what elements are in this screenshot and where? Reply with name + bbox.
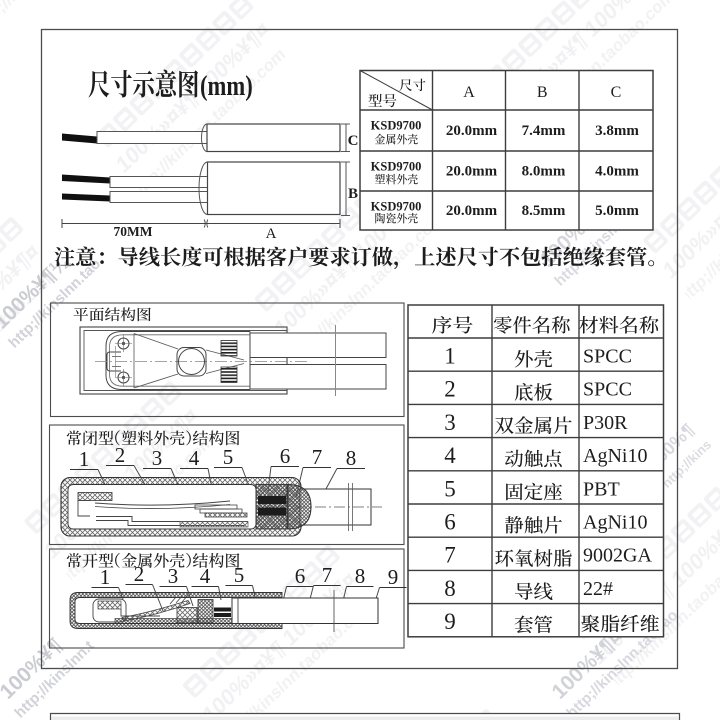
svg-text:3.8mm: 3.8mm bbox=[595, 123, 639, 139]
svg-text:8: 8 bbox=[355, 564, 366, 588]
svg-text:20.0mm: 20.0mm bbox=[446, 123, 498, 139]
svg-text:5: 5 bbox=[444, 476, 456, 501]
svg-text:5: 5 bbox=[234, 563, 245, 587]
svg-text:SPCC: SPCC bbox=[583, 346, 632, 368]
svg-text:4.0mm: 4.0mm bbox=[595, 164, 639, 180]
svg-text:1: 1 bbox=[444, 344, 456, 369]
svg-text:P30R: P30R bbox=[583, 412, 628, 434]
svg-text:4: 4 bbox=[200, 564, 211, 588]
svg-text:1: 1 bbox=[79, 447, 90, 471]
svg-text:6: 6 bbox=[280, 444, 291, 468]
svg-text:6: 6 bbox=[295, 564, 306, 588]
svg-text:C: C bbox=[348, 133, 359, 149]
svg-text:7: 7 bbox=[312, 445, 323, 469]
svg-text:4: 4 bbox=[444, 443, 456, 468]
svg-text:(mm): (mm) bbox=[200, 69, 253, 101]
svg-text:SPCC: SPCC bbox=[583, 379, 632, 401]
svg-text:8.5mm: 8.5mm bbox=[522, 203, 566, 219]
svg-text:KSD9700: KSD9700 bbox=[371, 200, 422, 214]
svg-text:20.0mm: 20.0mm bbox=[446, 164, 498, 180]
svg-text:3: 3 bbox=[152, 446, 163, 470]
svg-text:7.4mm: 7.4mm bbox=[522, 123, 566, 139]
svg-text:5: 5 bbox=[223, 445, 234, 469]
svg-text:2: 2 bbox=[134, 562, 145, 586]
svg-text:2: 2 bbox=[444, 377, 456, 402]
svg-text:AgNi10: AgNi10 bbox=[583, 512, 647, 534]
svg-text:8: 8 bbox=[444, 576, 456, 601]
svg-text:A: A bbox=[266, 226, 277, 242]
svg-text:1: 1 bbox=[100, 565, 111, 589]
svg-text:4: 4 bbox=[189, 446, 200, 470]
svg-text:8.0mm: 8.0mm bbox=[522, 164, 566, 180]
svg-text:20.0mm: 20.0mm bbox=[446, 203, 498, 219]
svg-text:2: 2 bbox=[115, 443, 126, 467]
svg-text:9002GA: 9002GA bbox=[583, 545, 652, 567]
svg-text:B: B bbox=[537, 84, 548, 101]
svg-text:22#: 22# bbox=[583, 578, 613, 600]
svg-text:70MM: 70MM bbox=[114, 224, 153, 239]
svg-text:PBT: PBT bbox=[583, 478, 620, 500]
svg-text:9: 9 bbox=[444, 609, 456, 634]
svg-text:A: A bbox=[463, 84, 475, 101]
svg-text:3: 3 bbox=[168, 564, 179, 588]
svg-text:7: 7 bbox=[444, 543, 456, 568]
svg-text:6: 6 bbox=[444, 510, 456, 535]
svg-text:5.0mm: 5.0mm bbox=[595, 203, 639, 219]
svg-text:7: 7 bbox=[322, 563, 333, 587]
svg-text:AgNi10: AgNi10 bbox=[583, 445, 647, 467]
svg-text:3: 3 bbox=[444, 410, 456, 435]
svg-text:B: B bbox=[348, 186, 358, 202]
svg-text:9: 9 bbox=[388, 565, 399, 589]
svg-text:C: C bbox=[611, 84, 622, 101]
svg-text:KSD9700: KSD9700 bbox=[371, 160, 422, 174]
svg-text:KSD9700: KSD9700 bbox=[371, 119, 422, 133]
svg-text:8: 8 bbox=[346, 446, 357, 470]
